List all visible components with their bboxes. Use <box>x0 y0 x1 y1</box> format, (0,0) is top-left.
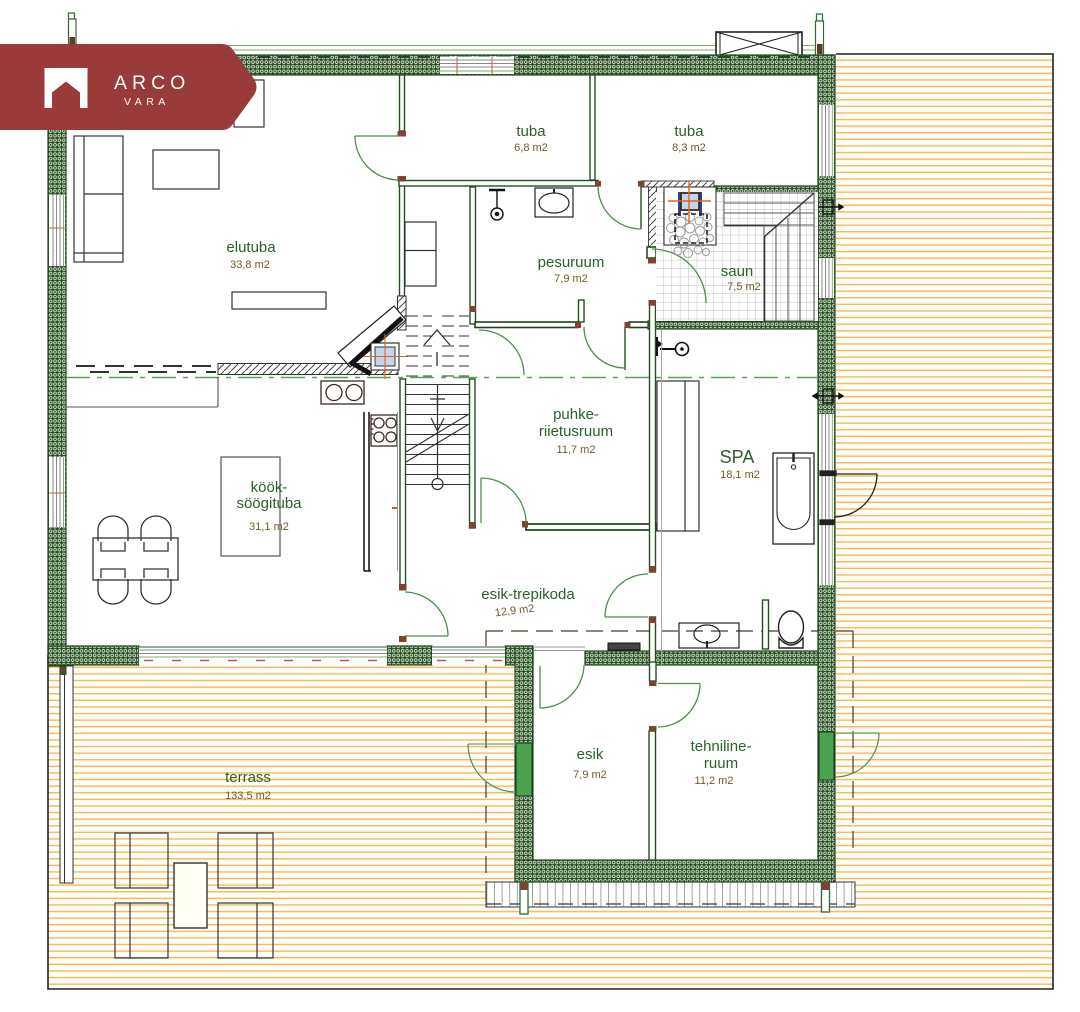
svg-text:VARA: VARA <box>124 96 170 108</box>
svg-text:tehniline-: tehniline- <box>691 738 752 755</box>
svg-text:esik: esik <box>577 746 604 763</box>
svg-text:pesuruum: pesuruum <box>538 254 605 271</box>
svg-text:saun: saun <box>721 263 754 280</box>
svg-text:11,7 m2: 11,7 m2 <box>557 444 596 456</box>
svg-text:8,3 m2: 8,3 m2 <box>672 142 706 154</box>
svg-text:tuba: tuba <box>674 123 704 140</box>
svg-text:33,8 m2: 33,8 m2 <box>230 259 270 271</box>
svg-text:söögituba: söögituba <box>236 495 302 512</box>
svg-text:esik-trepikoda: esik-trepikoda <box>481 586 575 603</box>
svg-text:6,8 m2: 6,8 m2 <box>514 142 548 154</box>
svg-text:7,9 m2: 7,9 m2 <box>554 273 588 285</box>
svg-text:ARCO: ARCO <box>114 72 190 94</box>
svg-text:SPA: SPA <box>720 447 755 467</box>
svg-text:ruum: ruum <box>704 755 738 772</box>
svg-text:puhke-: puhke- <box>553 406 599 423</box>
svg-text:18,1 m2: 18,1 m2 <box>720 469 760 481</box>
svg-text:elutuba: elutuba <box>226 239 276 256</box>
svg-text:31,1 m2: 31,1 m2 <box>249 521 289 533</box>
svg-text:riietusruum: riietusruum <box>539 423 613 440</box>
svg-text:7,5 m2: 7,5 m2 <box>727 281 761 293</box>
svg-text:7,9 m2: 7,9 m2 <box>573 769 607 781</box>
svg-text:köök-: köök- <box>251 479 288 496</box>
svg-text:133,5 m2: 133,5 m2 <box>225 790 271 802</box>
svg-text:tuba: tuba <box>516 123 546 140</box>
svg-text:11,2 m2: 11,2 m2 <box>695 775 734 787</box>
svg-text:terrass: terrass <box>225 769 271 786</box>
